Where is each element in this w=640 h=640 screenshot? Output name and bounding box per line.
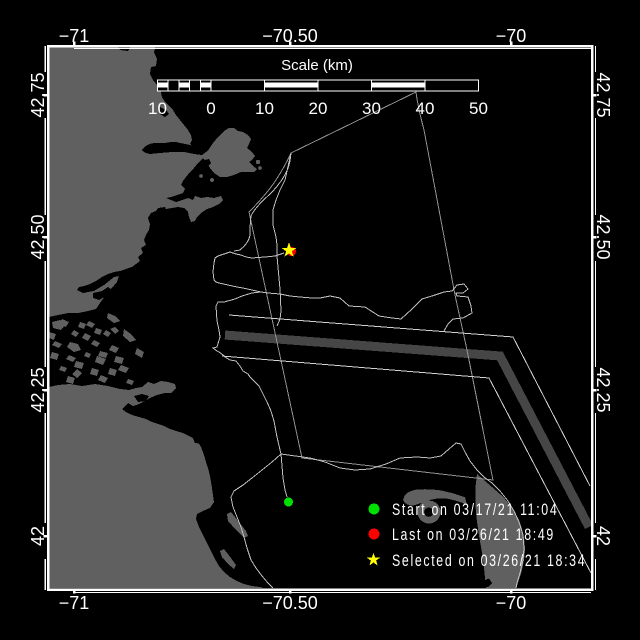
svg-text:−70: −70 [496,593,527,613]
svg-text:42.75: 42.75 [593,72,613,117]
svg-text:50: 50 [469,99,488,118]
svg-text:42.75: 42.75 [28,72,48,117]
svg-text:Start on 03/17/21 11:04: Start on 03/17/21 11:04 [392,501,558,519]
svg-text:Last on 03/26/21 18:49: Last on 03/26/21 18:49 [392,526,555,544]
svg-text:20: 20 [309,99,328,118]
svg-text:Selected on 03/26/21 18:34: Selected on 03/26/21 18:34 [392,552,586,570]
svg-text:42: 42 [593,526,613,546]
svg-text:42.50: 42.50 [28,214,48,259]
svg-text:10: 10 [148,99,167,118]
svg-text:−70.50: −70.50 [262,593,318,613]
svg-text:0: 0 [206,99,215,118]
svg-text:30: 30 [362,99,381,118]
svg-text:10: 10 [255,99,274,118]
svg-text:42.25: 42.25 [28,367,48,412]
svg-text:42: 42 [28,526,48,546]
svg-text:−71: −71 [59,26,90,46]
svg-text:Scale (km): Scale (km) [281,57,353,74]
svg-text:42.50: 42.50 [593,214,613,259]
svg-text:−71: −71 [59,593,90,613]
svg-text:−70.50: −70.50 [262,26,318,46]
svg-text:40: 40 [416,99,435,118]
svg-text:42.25: 42.25 [593,367,613,412]
svg-text:−70: −70 [496,26,527,46]
